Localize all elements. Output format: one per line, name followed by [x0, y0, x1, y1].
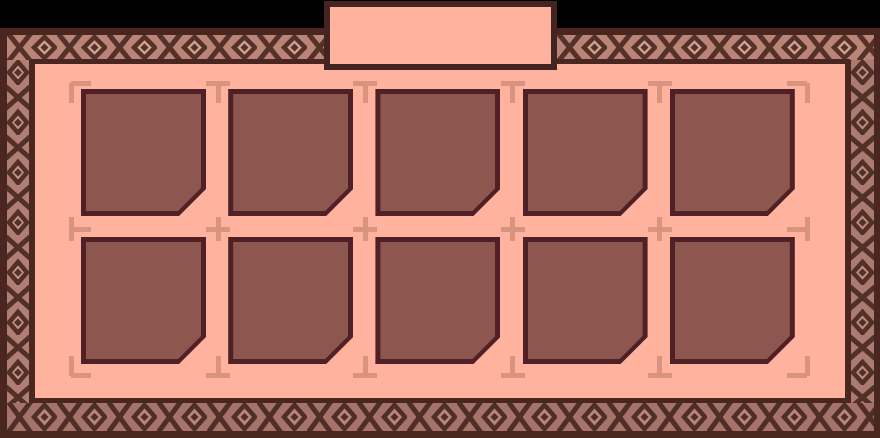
inventory-slot-surface	[380, 242, 495, 359]
inventory-slot[interactable]	[228, 237, 353, 364]
inventory-slot[interactable]	[670, 89, 795, 216]
inventory-slot-surface	[233, 94, 348, 211]
inventory-slot-surface	[675, 94, 790, 211]
inventory-slot[interactable]	[81, 89, 206, 216]
inventory-slot[interactable]	[670, 237, 795, 364]
panel-tab[interactable]	[324, 1, 557, 70]
inventory-slot[interactable]	[228, 89, 353, 216]
inventory-slot-surface	[528, 94, 643, 211]
inventory-slot[interactable]	[81, 237, 206, 364]
inventory-slot[interactable]	[375, 237, 500, 364]
inventory-slot[interactable]	[523, 237, 648, 364]
inventory-slot-surface	[233, 242, 348, 359]
inventory-slot-surface	[528, 242, 643, 359]
inventory-slot-surface	[380, 94, 495, 211]
inventory-slot-surface	[86, 242, 201, 359]
inventory-slot[interactable]	[523, 89, 648, 216]
inventory-slot-surface	[86, 94, 201, 211]
inventory-slot-surface	[675, 242, 790, 359]
inventory-slot[interactable]	[375, 89, 500, 216]
game-screen	[0, 0, 880, 438]
